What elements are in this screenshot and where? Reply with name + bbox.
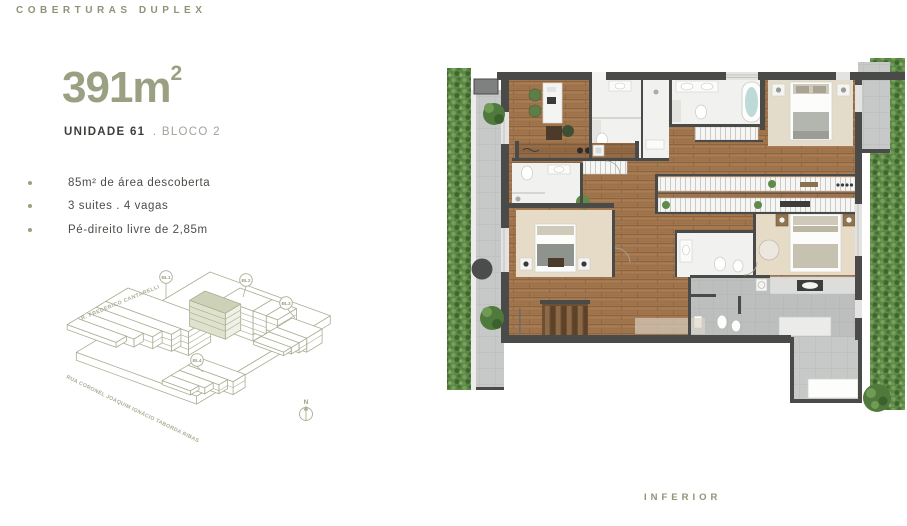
feature-list: 85m² de área descoberta 3 suites . 4 vag… bbox=[24, 171, 210, 242]
walk-in-closet bbox=[695, 127, 758, 140]
unit-block: . BLOCO 2 bbox=[153, 126, 221, 138]
table bbox=[546, 126, 562, 140]
terrace-walkway-left bbox=[472, 79, 505, 390]
svg-text:N: N bbox=[304, 399, 309, 406]
page-title: COBERTURAS DUPLEX bbox=[16, 5, 206, 16]
hedge-left bbox=[447, 68, 476, 390]
plant-icon bbox=[754, 201, 762, 209]
svg-text:BL2: BL2 bbox=[241, 278, 250, 284]
bedroom-3 bbox=[753, 212, 855, 275]
service-area bbox=[690, 277, 857, 338]
handrail bbox=[519, 308, 521, 334]
plant-icon bbox=[662, 201, 670, 209]
bathroom-3 bbox=[512, 163, 582, 205]
terrace-bottom-right bbox=[790, 337, 862, 403]
chair bbox=[562, 125, 574, 137]
bathroom-4 bbox=[677, 233, 753, 277]
feature-item: 3 suites . 4 vagas bbox=[24, 195, 210, 219]
plant-icon bbox=[768, 180, 776, 188]
site-map-buildings bbox=[67, 272, 330, 404]
bullet-icon bbox=[28, 228, 32, 232]
unit-label: UNIDADE 61 . BLOCO 2 bbox=[64, 126, 221, 138]
bullet-icon bbox=[28, 181, 32, 185]
pouf bbox=[759, 240, 779, 260]
svg-text:BL3: BL3 bbox=[281, 301, 290, 307]
unit-number: UNIDADE 61 bbox=[64, 126, 145, 138]
planter-circle bbox=[472, 259, 493, 280]
hall-rug bbox=[635, 318, 705, 334]
planter-box bbox=[474, 79, 498, 94]
island bbox=[779, 317, 831, 336]
north-compass-icon: N bbox=[300, 399, 313, 421]
block-label-bl1: BL1 bbox=[160, 271, 173, 298]
feature-item: Pé-direito livre de 2,85m bbox=[24, 218, 210, 242]
washer-icon bbox=[756, 279, 767, 291]
brochure-page: COBERTURAS DUPLEX 391m2 UNIDADE 61 . BLO… bbox=[0, 0, 907, 526]
master-bedroom bbox=[768, 80, 853, 146]
site-map-diagram: R. FREDERICO CANTARELLI RUA CORONEL JOAQ… bbox=[50, 258, 340, 443]
feature-item: 85m² de área descoberta bbox=[24, 171, 210, 195]
chair bbox=[529, 105, 541, 117]
svg-text:BL1: BL1 bbox=[161, 275, 170, 281]
unit-area: 391m2 bbox=[62, 66, 182, 110]
floor-plan bbox=[445, 55, 907, 470]
chair bbox=[529, 89, 541, 101]
bathroom-2 bbox=[643, 79, 669, 160]
floor-plan-caption: INFERIOR bbox=[644, 492, 721, 503]
svg-text:BL4: BL4 bbox=[192, 358, 201, 364]
master-bathroom bbox=[671, 79, 761, 124]
bullet-icon bbox=[28, 204, 32, 208]
area-exponent: 2 bbox=[171, 62, 183, 85]
